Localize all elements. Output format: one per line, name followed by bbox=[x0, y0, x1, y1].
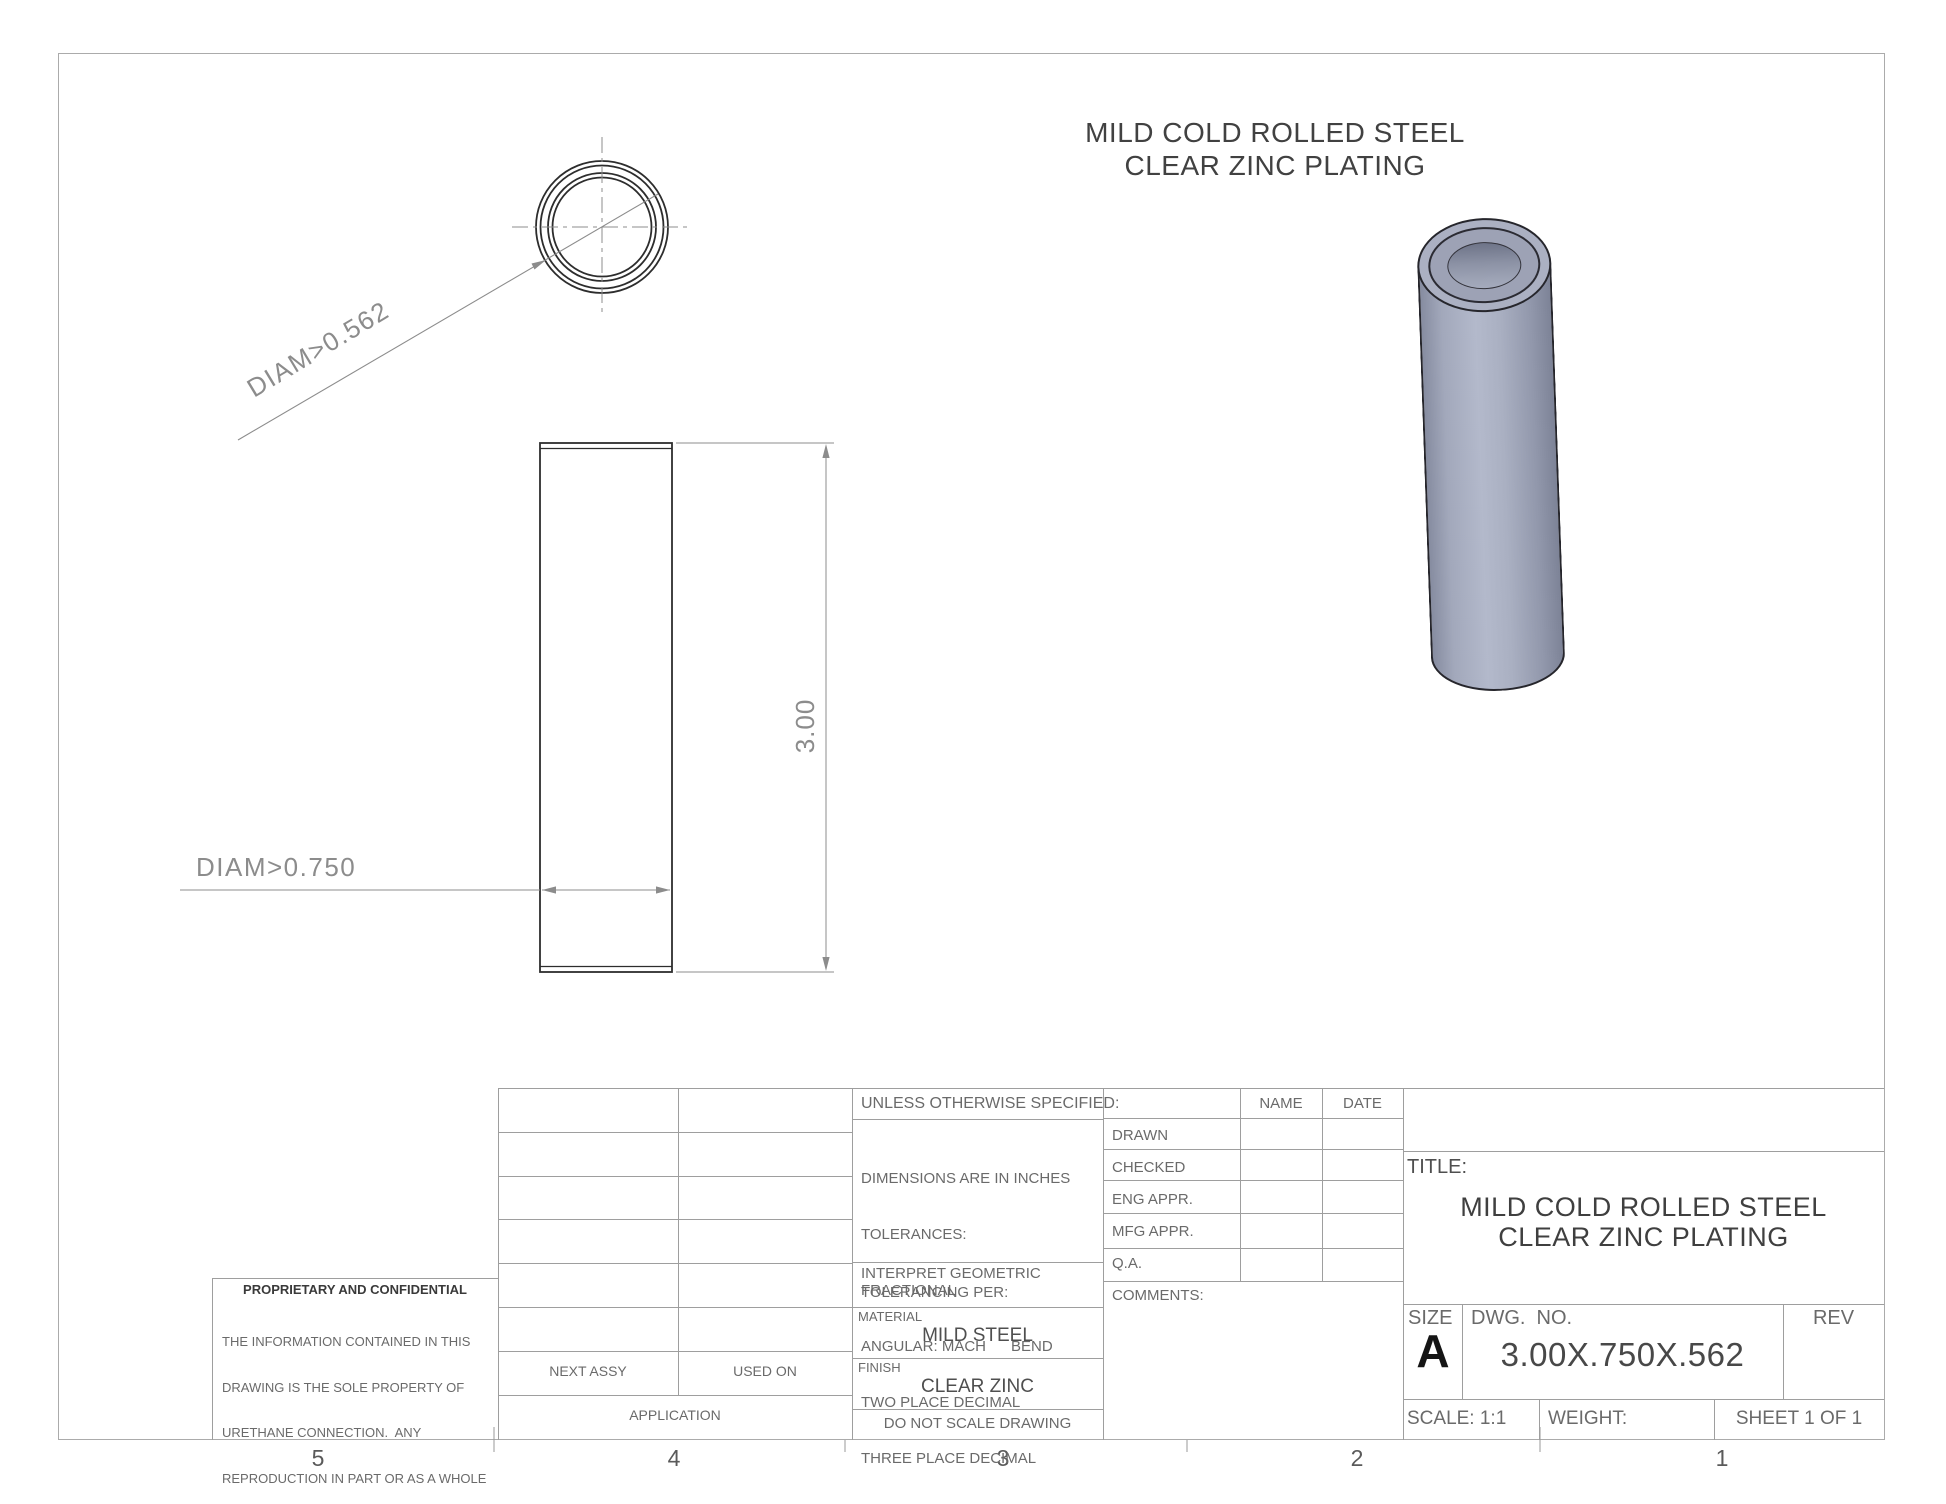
isometric-part-view bbox=[1416, 216, 1567, 698]
rev-label: REV bbox=[1783, 1307, 1884, 1329]
application-label: APPLICATION bbox=[498, 1408, 852, 1424]
sheet-label: SHEET 1 OF 1 bbox=[1714, 1408, 1884, 1429]
proprietary-line: REPRODUCTION IN PART OR AS A WHOLE bbox=[222, 1472, 487, 1489]
approval-row-eng-appr: ENG APPR. bbox=[1112, 1192, 1193, 1209]
used-on-label: USED ON bbox=[678, 1364, 852, 1380]
length-arrow-down-icon bbox=[822, 957, 829, 971]
material-note-line2: CLEAR ZINC PLATING bbox=[1030, 149, 1520, 182]
weight-label: WEIGHT: bbox=[1548, 1408, 1627, 1429]
finish-label: FINISH bbox=[858, 1361, 901, 1376]
material-note: MILD COLD ROLLED STEEL CLEAR ZINC PLATIN… bbox=[1030, 116, 1520, 182]
tolerance-line: DIMENSIONS ARE IN INCHES bbox=[861, 1171, 1070, 1193]
approval-row-qa: Q.A. bbox=[1112, 1256, 1142, 1273]
size-value: A bbox=[1404, 1326, 1462, 1378]
side-view-outline bbox=[540, 443, 672, 972]
next-assy-label: NEXT ASSY bbox=[498, 1364, 678, 1380]
outer-diameter-text: DIAM>0.750 bbox=[196, 852, 356, 882]
proprietary-body: THE INFORMATION CONTAINED IN THIS DRAWIN… bbox=[222, 1306, 487, 1504]
cylinder-chamfer-ring bbox=[1427, 225, 1542, 305]
proprietary-heading: PROPRIETARY AND CONFIDENTIAL bbox=[212, 1283, 498, 1298]
comments-label: COMMENTS: bbox=[1112, 1288, 1204, 1305]
inner-diameter-dimension: DIAM>0.562 bbox=[238, 194, 658, 440]
material-label: MATERIAL bbox=[858, 1310, 922, 1325]
proprietary-line: DRAWING IS THE SOLE PROPERTY OF bbox=[222, 1381, 487, 1398]
scale-value: SCALE: 1:1 bbox=[1407, 1408, 1506, 1429]
proprietary-line: THE INFORMATION CONTAINED IN THIS bbox=[222, 1335, 487, 1352]
cylinder-bore bbox=[1447, 241, 1523, 291]
interpret-geometric-line1: INTERPRET GEOMETRIC bbox=[861, 1266, 1041, 1283]
name-column-header: NAME bbox=[1240, 1096, 1322, 1113]
tolerance-header: UNLESS OTHERWISE SPECIFIED: bbox=[861, 1095, 1119, 1113]
length-arrow-up-icon bbox=[822, 444, 829, 458]
inner-diameter-arrowhead-icon bbox=[532, 260, 547, 270]
title-text-line1: MILD COLD ROLLED STEEL bbox=[1403, 1192, 1884, 1222]
material-value: MILD STEEL bbox=[852, 1325, 1103, 1346]
inner-diameter-text: DIAM>0.562 bbox=[242, 295, 395, 403]
zone-number-4: 4 bbox=[668, 1445, 681, 1471]
approval-row-drawn: DRAWN bbox=[1112, 1128, 1168, 1145]
approval-row-checked: CHECKED bbox=[1112, 1160, 1185, 1177]
side-view bbox=[540, 443, 672, 972]
dwg-no-label: DWG. NO. bbox=[1471, 1307, 1572, 1329]
interpret-geometric-line2: TOLERANCING PER: bbox=[861, 1285, 1008, 1302]
tolerance-line: THREE PLACE DECIMAL bbox=[861, 1451, 1070, 1473]
proprietary-line: URETHANE CONNECTION. ANY bbox=[222, 1426, 487, 1443]
zone-number-1: 1 bbox=[1716, 1445, 1729, 1471]
do-not-scale-label: DO NOT SCALE DRAWING bbox=[852, 1416, 1103, 1433]
finish-value: CLEAR ZINC bbox=[852, 1376, 1103, 1397]
tolerance-line: TOLERANCES: bbox=[861, 1227, 1070, 1249]
zone-number-2: 2 bbox=[1351, 1445, 1364, 1471]
approval-row-mfg-appr: MFG APPR. bbox=[1112, 1224, 1194, 1241]
tolerance-line: TWO PLACE DECIMAL bbox=[861, 1395, 1070, 1417]
drawing-sheet: DIAM>0.562 3.00 DIAM>0.750 bbox=[0, 0, 1946, 1504]
length-text: 3.00 bbox=[790, 699, 820, 754]
dwg-no-value: 3.00X.750X.562 bbox=[1462, 1337, 1783, 1374]
material-note-line1: MILD COLD ROLLED STEEL bbox=[1030, 116, 1520, 149]
inner-diameter-leader-line bbox=[238, 194, 658, 440]
title-label: TITLE: bbox=[1407, 1156, 1467, 1178]
cylinder-body bbox=[1417, 263, 1566, 693]
title-text-line2: CLEAR ZINC PLATING bbox=[1403, 1222, 1884, 1252]
date-column-header: DATE bbox=[1322, 1096, 1403, 1113]
